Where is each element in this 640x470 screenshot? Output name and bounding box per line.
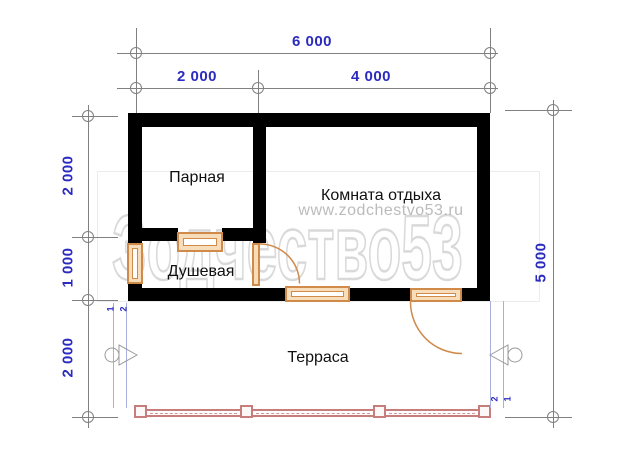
window-glass (132, 248, 138, 279)
dim-line-right (553, 100, 554, 428)
axis-extension-line-1 (136, 28, 137, 113)
section-arrow-right (490, 345, 508, 365)
section-line-1-right (503, 301, 504, 408)
window-rest-room (285, 286, 350, 302)
wall-left-upper (128, 113, 142, 243)
section-arrow-circle-right (508, 348, 522, 362)
room-label-steam: Парная (150, 169, 244, 187)
door-panel (416, 293, 456, 297)
section-line-2-right (490, 301, 491, 408)
axis-circle (82, 294, 94, 306)
section-number: 1 (503, 396, 513, 401)
section-number: 2 (119, 306, 129, 311)
railing-segment (253, 409, 373, 417)
axis-circle (547, 104, 559, 116)
dim-line-left (88, 105, 89, 428)
wall-bottom-middle (350, 288, 410, 301)
dim-label-total-width: 6 000 (270, 33, 354, 50)
axis-extension-line (505, 417, 572, 418)
dim-label-width-left: 2 000 (155, 68, 239, 85)
section-number: 2 (490, 396, 500, 401)
wall-interior-horizontal-right (222, 228, 253, 241)
axis-circle (82, 411, 94, 423)
window-left-shower (127, 243, 143, 284)
railing-segment (147, 409, 240, 417)
railing-post (134, 405, 147, 418)
door-leaf-shower (252, 243, 260, 286)
wall-right (477, 113, 490, 301)
room-label-terrace: Терраса (268, 349, 368, 367)
wall-bottom-right (462, 288, 490, 301)
railing-post (240, 405, 253, 418)
dim-label-terrace-depth: 2 000 (60, 303, 77, 413)
axis-extension-line (72, 300, 118, 301)
section-arrow-left (119, 345, 137, 365)
wall-top (128, 113, 490, 127)
dim-line-top-split (117, 88, 498, 89)
dim-label-total-depth: 5 000 (533, 208, 550, 318)
room-label-shower: Душевая (154, 263, 248, 281)
axis-extension-line (72, 417, 118, 418)
axis-circle (130, 82, 142, 94)
axis-circle (252, 82, 264, 94)
axis-extension-line (72, 116, 118, 117)
axis-extension-line (72, 237, 118, 238)
section-line-1-left (113, 303, 114, 408)
axis-circle (82, 110, 94, 122)
section-number: 1 (106, 306, 116, 311)
dim-line-top-total (117, 53, 498, 54)
room-label-rest: Комната отдыха (311, 187, 451, 205)
window-glass (291, 291, 344, 297)
door-steam-room (177, 232, 223, 252)
railing-segment (386, 409, 478, 417)
axis-circle (547, 411, 559, 423)
door-swing-arc-terrace (411, 302, 463, 354)
wall-interior-horizontal-left (142, 228, 178, 241)
axis-extension-line (505, 110, 572, 111)
axis-extension-line-3 (490, 28, 491, 113)
floor-plan-canvas: Зодчество53 www.zodchestvo53.ru 6 000 2 … (0, 0, 640, 470)
axis-circle (484, 82, 496, 94)
axis-circle (82, 231, 94, 243)
section-line-2-left (126, 303, 127, 408)
door-leaf-terrace (410, 288, 462, 302)
section-arrow-circle-left (105, 348, 119, 362)
door-panel (183, 238, 217, 246)
railing-post (373, 405, 386, 418)
dim-label-width-right: 4 000 (329, 68, 413, 85)
axis-circle (130, 47, 142, 59)
wall-bottom-left (128, 288, 285, 301)
wall-interior-vertical (253, 127, 266, 243)
axis-circle (484, 47, 496, 59)
